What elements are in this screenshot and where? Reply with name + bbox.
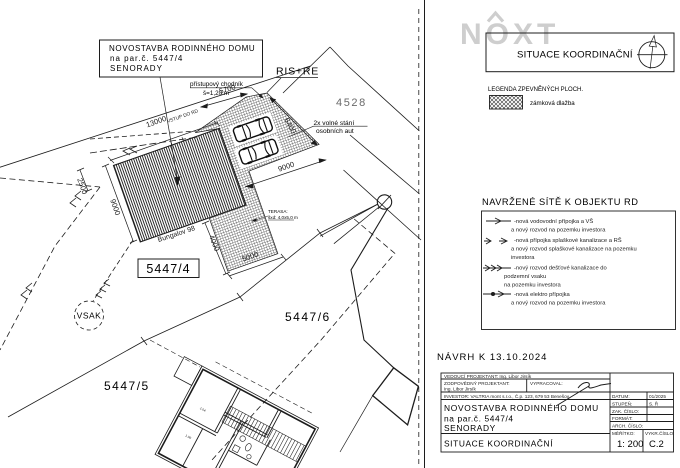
svg-text:na pozemku investora: na pozemku investora bbox=[504, 283, 561, 289]
svg-text:5447/6: 5447/6 bbox=[285, 310, 331, 324]
svg-text:a nový rozvod na pozemku inves: a nový rozvod na pozemku investora bbox=[511, 228, 606, 234]
svg-text:ARCH. ČÍSLO:: ARCH. ČÍSLO: bbox=[612, 423, 643, 429]
svg-text:INVESTOR: VALTRIA mont s.r.o.: INVESTOR: VALTRIA mont s.r.o., Č.p. 123,… bbox=[444, 393, 570, 399]
svg-text:VYKR.ČÍSLO:: VYKR.ČÍSLO: bbox=[645, 430, 674, 436]
svg-text:SENORADY: SENORADY bbox=[444, 423, 496, 433]
svg-text:a nový rozvod na pozemku inves: a nový rozvod na pozemku investora bbox=[511, 301, 606, 307]
svg-text:SITUACE KOORDINAČNÍ: SITUACE KOORDINAČNÍ bbox=[517, 50, 633, 61]
svg-text:-nová přípojka splaškové kanal: -nová přípojka splaškové kanalizace a RŠ bbox=[514, 237, 622, 244]
svg-text:S. Ř: S. Ř bbox=[649, 399, 659, 406]
svg-text:DATUM:: DATUM: bbox=[612, 394, 630, 399]
svg-text:TERASA:: TERASA: bbox=[268, 209, 288, 214]
svg-text:š=1,20 m: š=1,20 m bbox=[203, 90, 229, 97]
svg-text:investora: investora bbox=[511, 255, 535, 261]
svg-text:SENORADY: SENORADY bbox=[110, 64, 163, 73]
svg-text:podzemní vsaku: podzemní vsaku bbox=[504, 274, 546, 280]
svg-text:a nový rozvod splaškové kanali: a nový rozvod splaškové kanalizace na po… bbox=[511, 247, 637, 253]
svg-text:4528: 4528 bbox=[336, 97, 367, 109]
svg-text:-nový rozvod dešťové kanalizac: -nový rozvod dešťové kanalizace do bbox=[514, 266, 607, 272]
svg-text:Ing. Libor Jirsík: Ing. Libor Jirsík bbox=[444, 387, 476, 392]
svg-text:-nová vodovodní přípojka a VŠ: -nová vodovodní přípojka a VŠ bbox=[514, 218, 593, 225]
svg-text:na par.č. 5447/4: na par.č. 5447/4 bbox=[444, 414, 514, 424]
svg-text:01/2025: 01/2025 bbox=[649, 394, 666, 399]
svg-text:-nová elektro přípojka: -nová elektro přípojka bbox=[514, 292, 571, 298]
svg-text:FORMÁT:: FORMÁT: bbox=[612, 415, 633, 421]
svg-text:přístupový chodník: přístupový chodník bbox=[190, 81, 244, 88]
svg-text:ZAK. ČÍSLO:: ZAK. ČÍSLO: bbox=[612, 408, 639, 414]
svg-text:C.2: C.2 bbox=[649, 439, 664, 450]
svg-text:SITUACE KOORDINAČNÍ: SITUACE KOORDINAČNÍ bbox=[444, 439, 553, 449]
svg-text:NOVOSTAVBA RODINNÉHO DOMU: NOVOSTAVBA RODINNÉHO DOMU bbox=[444, 403, 599, 413]
svg-text:5447/5: 5447/5 bbox=[104, 379, 150, 393]
svg-text:šxd: 4,0x5,0 m: šxd: 4,0x5,0 m bbox=[268, 215, 298, 220]
svg-text:VEDOUCÍ PROJEKTANT: Ing. Libo: VEDOUCÍ PROJEKTANT: Ing. Libor Jirsík bbox=[444, 373, 532, 379]
svg-text:zámková dlažba: zámková dlažba bbox=[530, 100, 575, 107]
svg-text:1: 200: 1: 200 bbox=[617, 439, 643, 450]
svg-text:VYPRACOVAL:: VYPRACOVAL: bbox=[530, 381, 563, 386]
svg-text:osobních aut: osobních aut bbox=[316, 128, 354, 135]
svg-text:NAVRŽENÉ SÍTĚ K OBJEKTU RD: NAVRŽENÉ SÍTĚ K OBJEKTU RD bbox=[482, 197, 638, 207]
svg-text:VSAK: VSAK bbox=[77, 311, 102, 321]
svg-text:na par.č. 5447/4: na par.č. 5447/4 bbox=[110, 54, 183, 63]
svg-text:NOVOSTAVBA RODINNÉHO DOMU: NOVOSTAVBA RODINNÉHO DOMU bbox=[109, 44, 255, 53]
svg-text:MĚŘÍTKO:: MĚŘÍTKO: bbox=[612, 429, 635, 436]
svg-text:ZODPOVĚDNÝ PROJEKTANT:: ZODPOVĚDNÝ PROJEKTANT: bbox=[444, 379, 510, 386]
svg-text:NÁVRH K 13.10.2024: NÁVRH K 13.10.2024 bbox=[437, 352, 547, 363]
svg-text:NOXT: NOXT bbox=[460, 18, 559, 51]
svg-text:STUPEŇ:: STUPEŇ: bbox=[612, 400, 632, 406]
svg-text:RIS+RE: RIS+RE bbox=[276, 66, 319, 78]
svg-text:LEGENDA ZPEVNĚNÝCH PLOCH.: LEGENDA ZPEVNĚNÝCH PLOCH. bbox=[488, 85, 583, 93]
svg-text:5447/4: 5447/4 bbox=[146, 262, 190, 276]
